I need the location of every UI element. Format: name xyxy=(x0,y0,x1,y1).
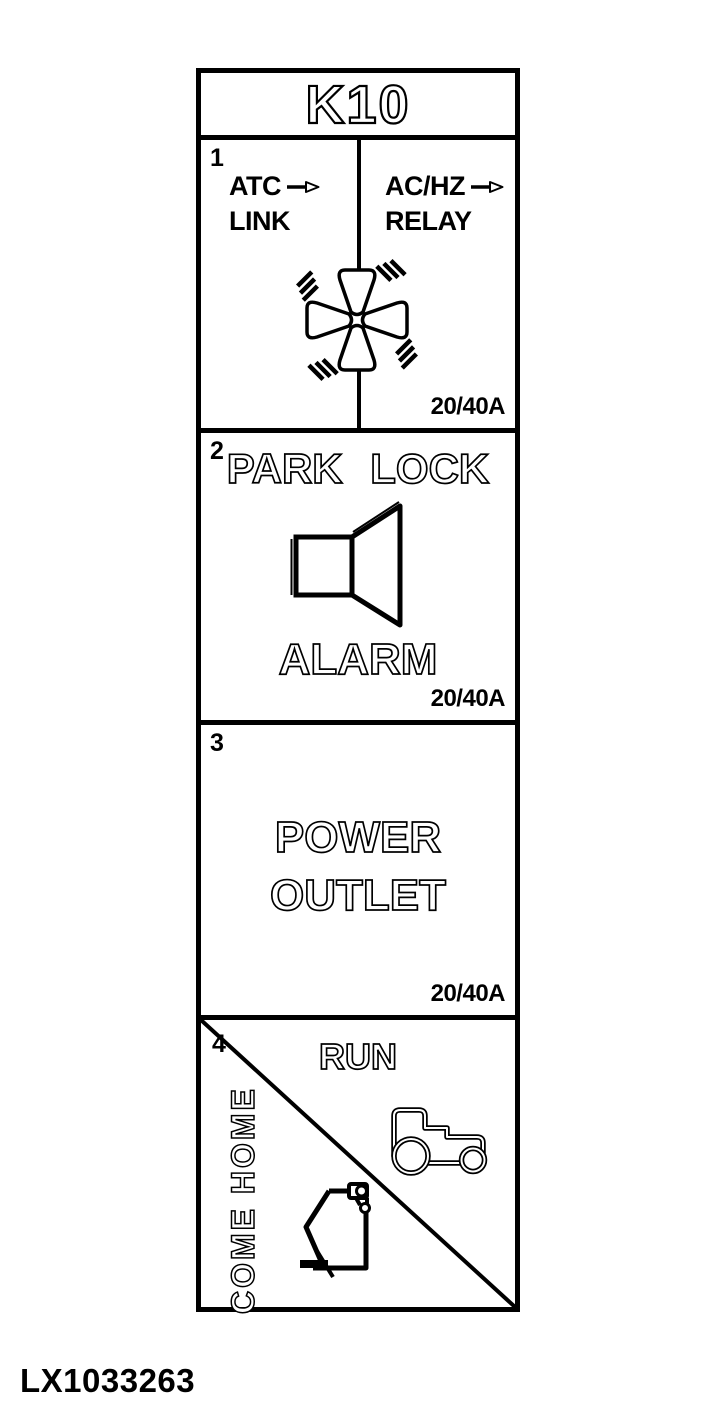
achz-label: AC/HZ xyxy=(385,169,465,204)
section-3-rating: 20/40A xyxy=(431,980,505,1008)
section-1-left-labels: ATC LINK xyxy=(229,169,320,239)
header-k10: K10 xyxy=(201,73,515,135)
park-lock-label: PARK LOCK xyxy=(201,445,515,493)
figure-code: LX1033263 xyxy=(20,1362,195,1400)
fan-icon xyxy=(287,250,427,390)
arrow-right-icon xyxy=(470,179,504,195)
section-2: 2 PARK LOCK ALARM 20/40A xyxy=(201,433,515,720)
alarm-label: ALARM xyxy=(201,635,515,685)
section-1-right-labels: AC/HZ RELAY xyxy=(385,169,504,239)
section-3-number: 3 xyxy=(210,729,224,758)
arrow-right-icon xyxy=(286,179,320,195)
come-home-label: COME HOME xyxy=(225,1082,262,1314)
relay-label-box: K10 1 ATC LINK AC/HZ RELA xyxy=(196,68,520,1312)
section-1-number: 1 xyxy=(210,144,224,173)
atc-label: ATC xyxy=(229,169,281,204)
speaker-icon xyxy=(288,499,410,631)
section-1-rating: 20/40A xyxy=(431,393,505,421)
power-label: POWER xyxy=(201,813,515,863)
run-label: RUN xyxy=(201,1036,515,1078)
come-home-hitch-icon xyxy=(297,1175,377,1280)
relay-word-label: RELAY xyxy=(385,204,472,239)
tractor-icon xyxy=(384,1103,496,1179)
section-4: 4 RUN COME HOME xyxy=(201,1020,515,1307)
section-3: 3 POWER OUTLET 20/40A xyxy=(201,725,515,1015)
section-2-rating: 20/40A xyxy=(431,685,505,713)
link-label: LINK xyxy=(229,204,290,239)
section-1: 1 ATC LINK AC/HZ RELAY xyxy=(201,140,515,428)
relay-title: K10 xyxy=(201,74,515,136)
outlet-label: OUTLET xyxy=(201,871,515,921)
